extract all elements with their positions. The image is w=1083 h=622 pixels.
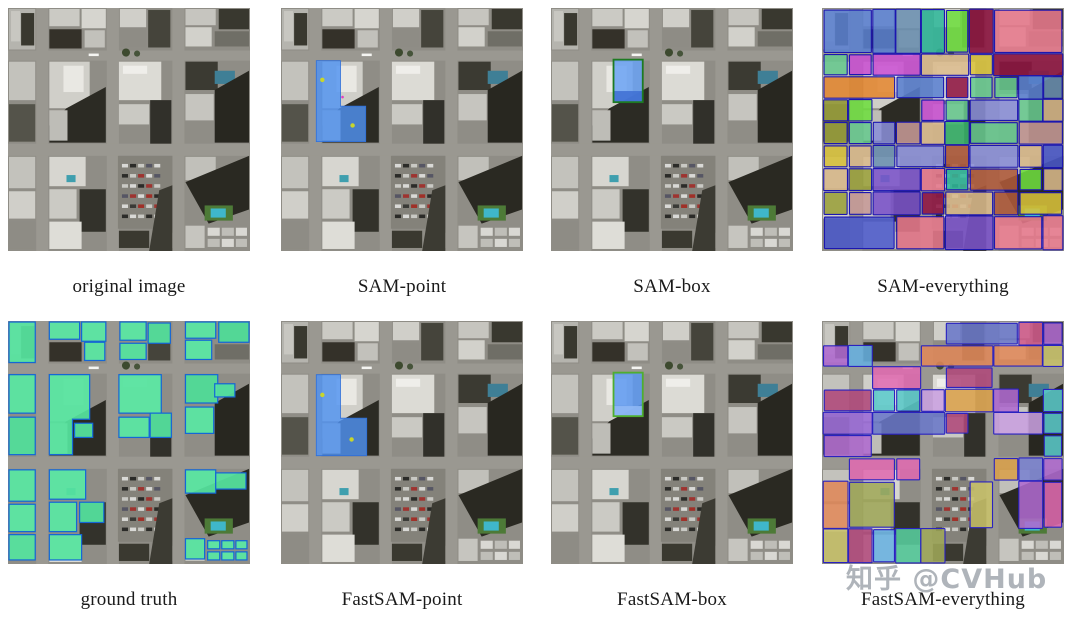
satellite-image xyxy=(822,321,1064,564)
caption-sam-point: SAM-point xyxy=(281,276,523,298)
panel-fastsam-point xyxy=(281,321,523,564)
caption-sam-everything: SAM-everything xyxy=(822,276,1064,298)
figure-grid: original image SAM-point SAM-box SAM-eve… xyxy=(0,0,1083,622)
panel-ground-truth xyxy=(8,321,250,564)
caption-fastsam-point: FastSAM-point xyxy=(281,589,523,611)
satellite-image xyxy=(281,321,523,564)
caption-original-image: original image xyxy=(8,276,250,298)
panel-sam-everything xyxy=(822,8,1064,251)
caption-sam-box: SAM-box xyxy=(551,276,793,298)
satellite-image xyxy=(551,321,793,564)
caption-fastsam-box: FastSAM-box xyxy=(551,589,793,611)
satellite-image xyxy=(822,8,1064,251)
panel-fastsam-everything xyxy=(822,321,1064,564)
satellite-image xyxy=(281,8,523,251)
zhihu-cvhub-watermark: 知乎 @CVHub xyxy=(846,557,1047,596)
panel-original-image xyxy=(8,8,250,251)
satellite-image xyxy=(8,321,250,564)
satellite-image xyxy=(8,8,250,251)
panel-sam-box xyxy=(551,8,793,251)
caption-ground-truth: ground truth xyxy=(8,589,250,611)
panel-sam-point xyxy=(281,8,523,251)
panel-fastsam-box xyxy=(551,321,793,564)
satellite-image xyxy=(551,8,793,251)
